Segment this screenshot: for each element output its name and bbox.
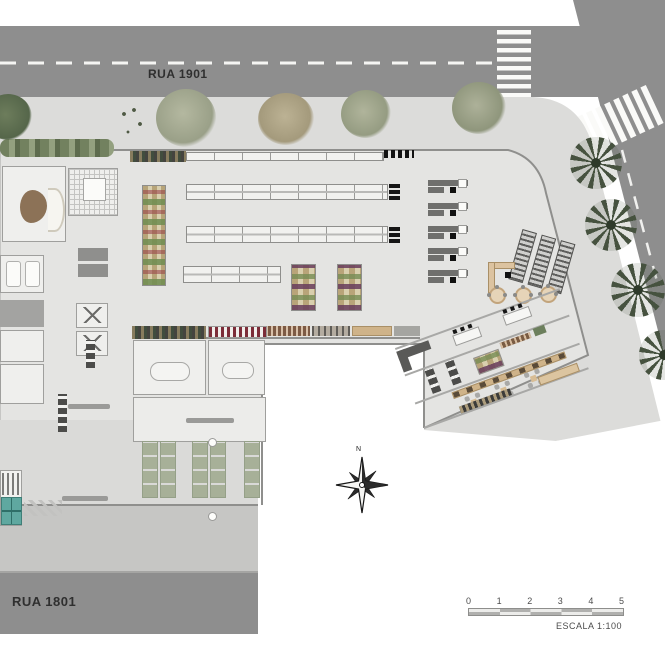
retail-shelf bbox=[445, 359, 462, 386]
service-counter bbox=[452, 326, 482, 346]
parking-column bbox=[192, 441, 208, 498]
gondola-row bbox=[186, 184, 388, 200]
service-block bbox=[78, 248, 108, 261]
scale-bar-rule bbox=[468, 608, 624, 616]
palm-tree bbox=[611, 263, 665, 317]
parking-column bbox=[244, 441, 260, 498]
palm-tree bbox=[585, 199, 637, 251]
parking-column bbox=[142, 441, 158, 498]
prep-island bbox=[222, 362, 254, 379]
scale-tick: 4 bbox=[588, 596, 593, 606]
stair-treads bbox=[2, 473, 20, 495]
page-bottom bbox=[258, 441, 665, 665]
cooler-shelf bbox=[132, 326, 206, 339]
site-plan: RUA 1901 RUA 1801 N 0 1 2 3 4 5 ESCALA 1… bbox=[0, 0, 665, 665]
north-label: N bbox=[356, 446, 361, 453]
scale-tick: 2 bbox=[527, 596, 532, 606]
gondola-row bbox=[186, 226, 388, 243]
ramp-hatch bbox=[24, 500, 62, 516]
wheel-stop bbox=[62, 496, 108, 501]
back-room bbox=[0, 364, 44, 404]
scale-bar: 0 1 2 3 4 5 ESCALA 1:100 bbox=[468, 596, 622, 631]
service-block bbox=[78, 264, 108, 277]
hedge bbox=[0, 139, 114, 157]
produce-table bbox=[337, 264, 362, 311]
compass-star bbox=[332, 455, 392, 517]
chair bbox=[505, 272, 511, 278]
compass-rose: N bbox=[332, 446, 392, 518]
street-name: RUA 1901 bbox=[148, 67, 208, 81]
shrub-marks bbox=[118, 104, 146, 140]
cart-storage-entry bbox=[384, 150, 414, 158]
wheel-stop bbox=[186, 418, 234, 423]
scale-label: ESCALA 1:100 bbox=[468, 621, 622, 631]
column-bollard bbox=[208, 438, 217, 447]
scale-tick: 0 bbox=[466, 596, 471, 606]
storage-shelf bbox=[58, 394, 67, 432]
wall-shelf bbox=[130, 151, 186, 162]
street-label-top: RUA 1901 bbox=[148, 67, 208, 81]
checkout-lane bbox=[428, 268, 470, 285]
service-room bbox=[0, 300, 44, 327]
stair-landing-teal bbox=[1, 497, 22, 525]
scale-tick: 3 bbox=[558, 596, 563, 606]
street-name: RUA 1801 bbox=[12, 594, 76, 609]
parking-column bbox=[210, 441, 226, 498]
checkout-lane bbox=[428, 201, 470, 218]
service-counter bbox=[312, 326, 350, 336]
checkout-lane bbox=[428, 224, 470, 241]
retail-shelf bbox=[424, 367, 441, 394]
scale-tick: 1 bbox=[497, 596, 502, 606]
bakery-counter bbox=[352, 326, 392, 336]
gondola-endcap bbox=[389, 184, 400, 200]
fixture bbox=[25, 261, 40, 287]
storage-shelf bbox=[86, 340, 95, 368]
street-tree bbox=[258, 93, 314, 145]
wheel-stop bbox=[68, 404, 110, 409]
elevator bbox=[76, 303, 108, 328]
deli-counter bbox=[266, 326, 310, 336]
cafe-table bbox=[489, 287, 506, 304]
palm-tree bbox=[570, 137, 622, 189]
prep-island bbox=[150, 362, 190, 381]
street-tree bbox=[452, 82, 506, 134]
column-bollard bbox=[208, 512, 217, 521]
checkout-lane bbox=[428, 246, 470, 263]
checkout-lane bbox=[428, 178, 470, 195]
produce-rack bbox=[142, 185, 166, 286]
parking-column bbox=[160, 441, 176, 498]
gondola-row bbox=[186, 152, 384, 161]
scale-tick: 5 bbox=[619, 596, 624, 606]
gondola-row bbox=[183, 266, 281, 283]
fixture bbox=[6, 261, 21, 287]
skylight bbox=[83, 178, 106, 201]
street-label-bottom: RUA 1801 bbox=[12, 594, 76, 609]
street-tree bbox=[341, 90, 391, 138]
scale-ticks: 0 1 2 3 4 5 bbox=[466, 596, 624, 606]
produce-table bbox=[291, 264, 316, 311]
gondola-endcap bbox=[389, 227, 400, 243]
counter-end bbox=[394, 326, 420, 336]
street-tree bbox=[156, 89, 216, 147]
wine-shelf bbox=[208, 326, 267, 338]
back-room bbox=[0, 330, 44, 362]
